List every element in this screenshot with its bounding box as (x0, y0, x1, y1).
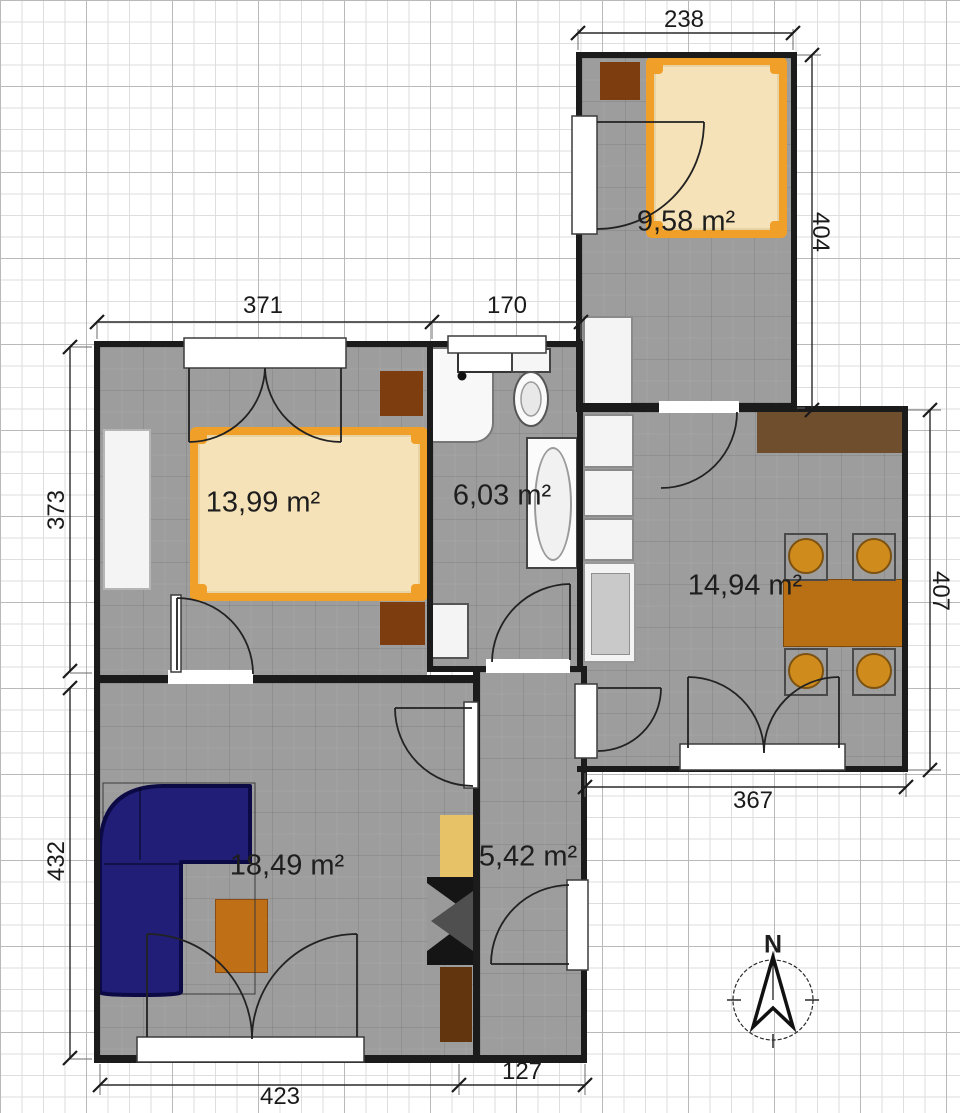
dimension-label: 432 (43, 841, 71, 881)
room-label-bedroom-large: 13,99 m² (206, 487, 320, 520)
plan-linework (0, 0, 960, 1113)
dimension-label: 407 (926, 571, 954, 611)
dimension-label: 371 (243, 292, 283, 320)
corner-sofa (100, 786, 250, 995)
french-door-kitchen (680, 744, 845, 770)
room-label-bedroom-small: 9,58 m² (637, 206, 735, 239)
window-bathroom (448, 336, 546, 353)
dimension-ticks (63, 26, 937, 1092)
door-leaf (171, 595, 181, 672)
dimension-label: 170 (487, 292, 527, 320)
dimension-label: 127 (502, 1058, 542, 1086)
room-label-bathroom: 6,03 m² (453, 480, 551, 513)
dimension-label: 367 (733, 787, 773, 815)
dimension-label: 238 (664, 6, 704, 34)
room-label-kitchen: 14,94 m² (688, 570, 802, 603)
window-bedroom-large (184, 338, 346, 368)
floor-plan: 9,58 m² 13,99 m² 6,03 m² 14,94 m² 18,49 … (0, 0, 960, 1113)
window-bedroom-small (572, 116, 597, 234)
french-door-living (137, 1037, 364, 1062)
extension-lines (70, 29, 941, 1095)
dimension-label: 423 (260, 1083, 300, 1111)
door-leaf (575, 684, 597, 758)
room-label-living: 18,49 m² (230, 850, 344, 883)
door-leaf-entrance (567, 880, 588, 970)
compass-north-label: N (764, 931, 782, 960)
dimension-label: 404 (806, 212, 834, 252)
toilet (512, 349, 550, 426)
room-label-hallway: 5,42 m² (479, 841, 577, 874)
door-leaf (464, 702, 478, 788)
walls (94, 52, 908, 1063)
compass (727, 957, 819, 1048)
dimension-label: 373 (43, 490, 71, 530)
shower-faucet (458, 372, 467, 381)
